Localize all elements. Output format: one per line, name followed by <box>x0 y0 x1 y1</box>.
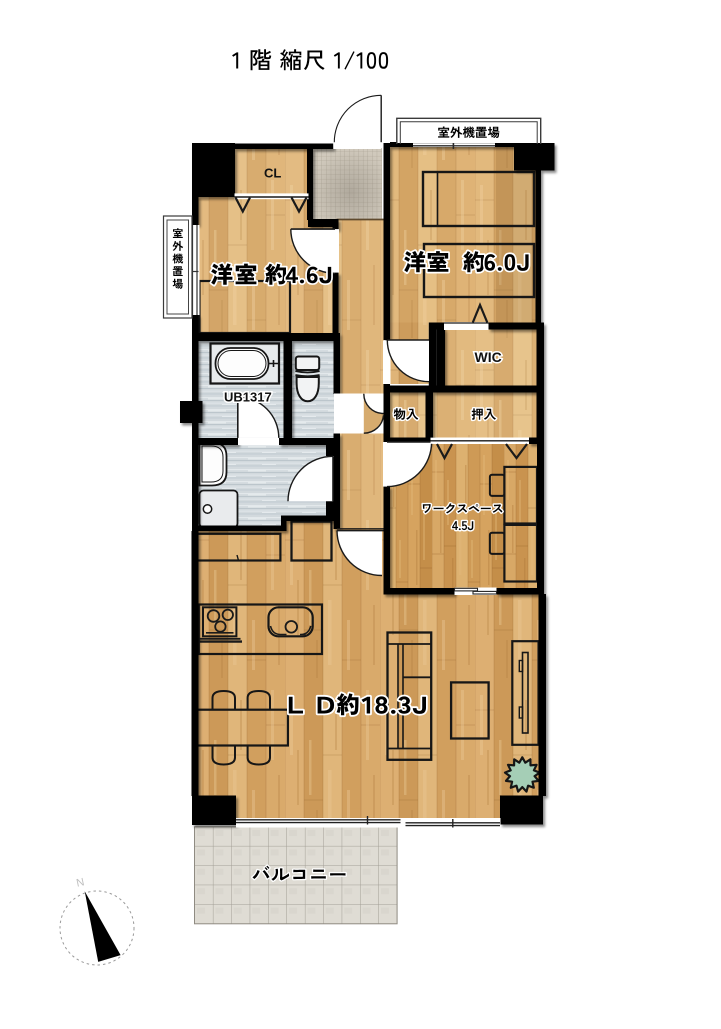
svg-text:WIC: WIC <box>475 349 502 365</box>
svg-text:CL: CL <box>264 166 281 181</box>
svg-text:UB1317: UB1317 <box>224 390 272 405</box>
